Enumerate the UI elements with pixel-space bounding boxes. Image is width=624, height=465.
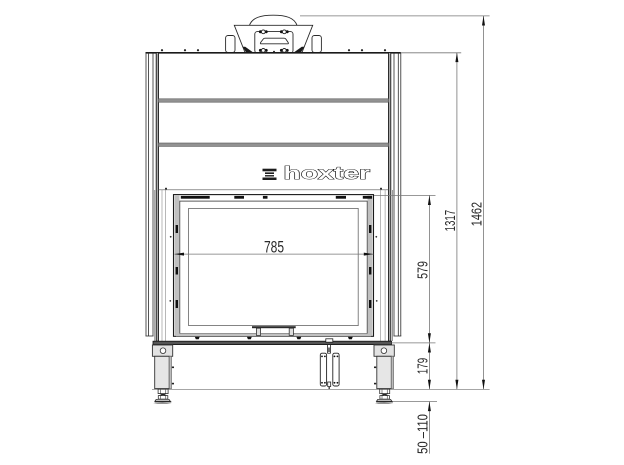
svg-text:50 –110: 50 –110: [414, 414, 431, 454]
svg-text:hoxter: hoxter: [283, 164, 370, 183]
svg-text:1317: 1317: [441, 210, 459, 232]
svg-text:579: 579: [414, 261, 431, 279]
svg-text:785: 785: [264, 239, 284, 257]
svg-text:179: 179: [413, 358, 431, 374]
svg-text:1462: 1462: [468, 202, 485, 226]
